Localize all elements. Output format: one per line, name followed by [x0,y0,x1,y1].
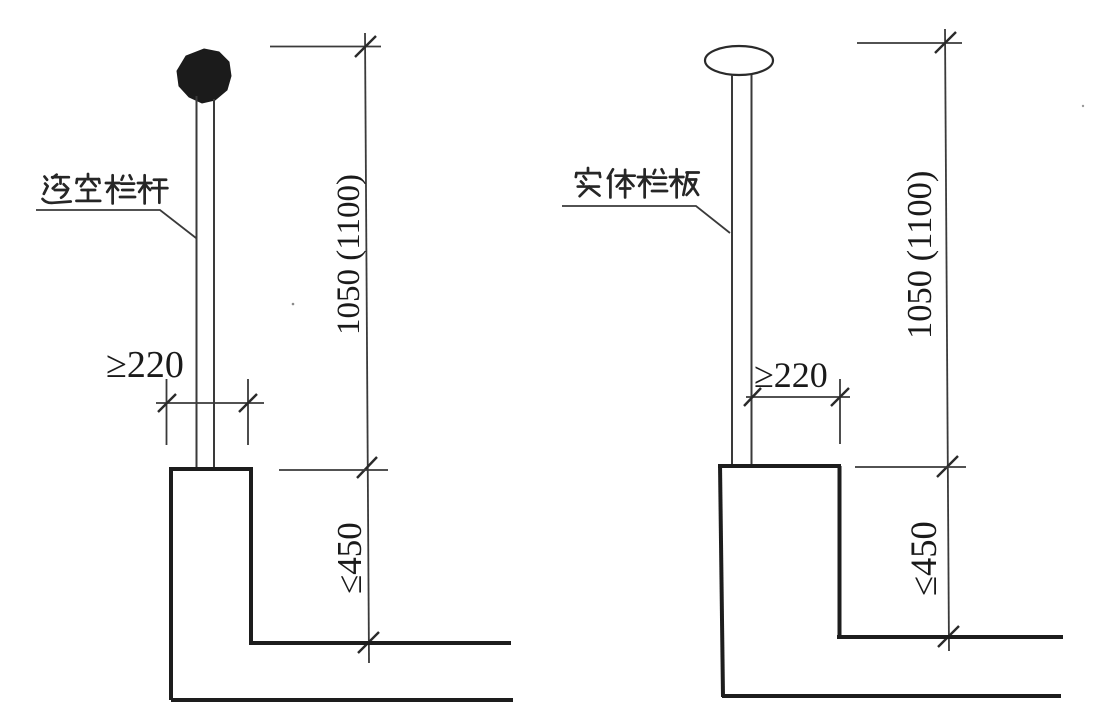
svg-text:≥220: ≥220 [754,355,828,395]
svg-text:≤450: ≤450 [903,521,944,596]
svg-text:≥220: ≥220 [106,344,184,386]
svg-text:≤450: ≤450 [330,522,369,594]
svg-text:1050 (1100): 1050 (1100) [901,171,939,339]
svg-text:1050 (1100): 1050 (1100) [331,174,367,335]
